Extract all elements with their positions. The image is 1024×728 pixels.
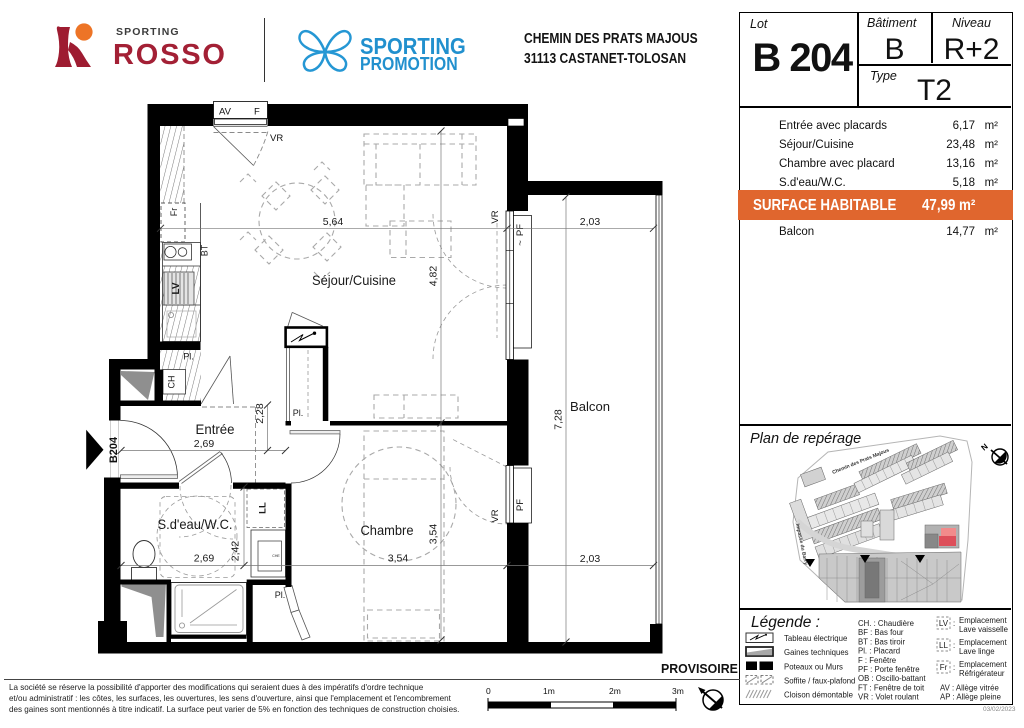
svg-text:Emplacement: Emplacement	[959, 616, 1008, 625]
svg-text:2,42: 2,42	[230, 541, 242, 562]
svg-text:Emplacement: Emplacement	[959, 660, 1008, 669]
svg-text:VR : Volet roulant: VR : Volet roulant	[858, 693, 920, 702]
svg-text:LV: LV	[171, 282, 182, 294]
svg-text:VR: VR	[490, 210, 501, 223]
svg-text:AV : Allège vitrée: AV : Allège vitrée	[940, 683, 999, 692]
svg-text:Lave linge: Lave linge	[959, 647, 995, 656]
svg-text:Pl.: Pl.	[275, 590, 286, 600]
svg-text:2,69: 2,69	[194, 553, 215, 565]
svg-text:AV: AV	[219, 107, 232, 118]
svg-text:Tableau électrique: Tableau électrique	[784, 634, 847, 643]
svg-text:S.d'eau/W.C.: S.d'eau/W.C.	[158, 516, 233, 532]
svg-text:VR: VR	[490, 509, 501, 522]
svg-text:PF : Porte fenêtre: PF : Porte fenêtre	[858, 665, 920, 674]
svg-text:Pl.: Pl.	[183, 352, 194, 362]
svg-text:4,82: 4,82	[428, 266, 440, 287]
svg-text:CHE: CHE	[272, 554, 280, 558]
svg-text:LV: LV	[939, 619, 949, 628]
svg-text:CH: CH	[167, 376, 177, 389]
svg-text:Soffite / faux-plafond: Soffite / faux-plafond	[784, 677, 855, 686]
svg-text::: :	[953, 619, 955, 628]
svg-text:F : Fenêtre: F : Fenêtre	[858, 656, 896, 665]
svg-text:3,54: 3,54	[428, 524, 440, 545]
svg-text::: :	[953, 663, 955, 672]
svg-text:Chambre: Chambre	[361, 522, 414, 538]
svg-text:VR: VR	[270, 133, 283, 144]
svg-text:OB : Oscillo-battant: OB : Oscillo-battant	[858, 674, 926, 683]
svg-text:Pl.: Pl.	[293, 408, 304, 418]
svg-text:1m: 1m	[543, 686, 555, 696]
svg-text:AP : Allège pleine: AP : Allège pleine	[940, 693, 1001, 702]
svg-text:N: N	[980, 442, 990, 453]
svg-text:~: ~	[515, 240, 526, 246]
svg-text:CH. : Chaudière: CH. : Chaudière	[858, 619, 914, 628]
svg-text:3,54: 3,54	[388, 553, 409, 565]
svg-text:Entrée: Entrée	[196, 421, 235, 437]
svg-text:5,64: 5,64	[323, 216, 344, 228]
svg-text:2,03: 2,03	[580, 553, 601, 565]
svg-text:BT: BT	[200, 244, 210, 256]
svg-text:Lave vaisselle: Lave vaisselle	[959, 625, 1008, 634]
svg-text:2m: 2m	[609, 686, 621, 696]
svg-text:Balcon: Balcon	[570, 400, 610, 414]
svg-text:Légende :: Légende :	[751, 614, 820, 631]
svg-text:F: F	[254, 107, 260, 118]
svg-text:Emplacement: Emplacement	[959, 638, 1008, 647]
svg-text:0: 0	[486, 686, 491, 696]
svg-text:BT : Bas tiroir: BT : Bas tiroir	[858, 637, 905, 646]
svg-text::: :	[953, 641, 955, 650]
svg-text:Gaines techniques: Gaines techniques	[784, 648, 849, 657]
svg-text:7,28: 7,28	[553, 409, 565, 430]
svg-text:2,03: 2,03	[580, 216, 601, 228]
svg-text:Séjour/Cuisine: Séjour/Cuisine	[312, 272, 396, 288]
svg-text:PF: PF	[515, 224, 526, 236]
svg-text:Fr: Fr	[940, 663, 948, 672]
svg-text:LL: LL	[939, 641, 948, 650]
svg-text:Cloison démontable: Cloison démontable	[784, 691, 853, 700]
svg-text:PF: PF	[515, 499, 526, 511]
svg-text:B204: B204	[108, 436, 120, 463]
svg-text:2,28: 2,28	[254, 403, 266, 424]
svg-text:Pl. : Placard: Pl. : Placard	[858, 647, 900, 656]
svg-text:3m: 3m	[672, 686, 684, 696]
svg-text:2,69: 2,69	[194, 438, 215, 450]
svg-text:LL: LL	[258, 502, 269, 514]
svg-text:Poteaux ou Murs: Poteaux ou Murs	[784, 663, 843, 672]
svg-text:BF : Bas four: BF : Bas four	[858, 628, 904, 637]
svg-text:FT : Fenêtre de toit: FT : Fenêtre de toit	[858, 683, 925, 692]
svg-text:Fr: Fr	[169, 208, 179, 217]
svg-text:Réfrigérateur: Réfrigérateur	[959, 669, 1005, 678]
